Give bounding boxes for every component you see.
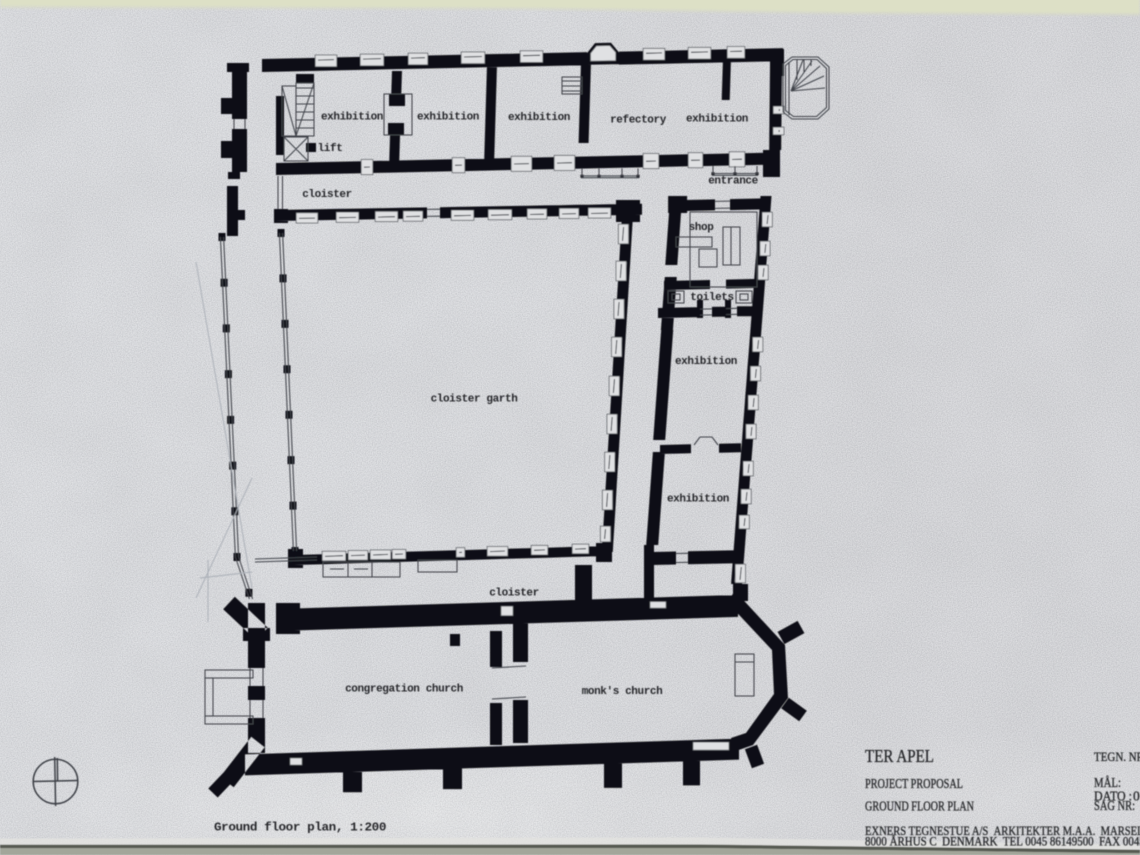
svg-text:exhibition: exhibition xyxy=(417,112,479,124)
svg-text:cloister garth: cloister garth xyxy=(431,394,518,406)
svg-text:exhibition: exhibition xyxy=(675,356,737,368)
svg-text:lift: lift xyxy=(318,143,343,155)
svg-text:TEGN. NR: TEGN. NR xyxy=(1094,750,1140,764)
svg-text:toilets: toilets xyxy=(690,292,733,304)
svg-text:shop: shop xyxy=(689,222,715,234)
svg-text:PROJECT PROPOSAL: PROJECT PROPOSAL xyxy=(865,776,963,791)
svg-text:exhibition: exhibition xyxy=(686,114,748,126)
svg-text:entrance: entrance xyxy=(708,176,758,188)
svg-text:Ground floor plan, 1:200: Ground floor plan, 1:200 xyxy=(214,821,386,835)
svg-text:exhibition: exhibition xyxy=(508,112,570,124)
svg-text:monk's church: monk's church xyxy=(582,686,663,698)
svg-text:8000 ÅRHUS C DENMARK TEL 004: 8000 ÅRHUS C DENMARK TEL 0045 86149500 F… xyxy=(865,835,1140,849)
svg-text:GROUND FLOOR PLAN: GROUND FLOOR PLAN xyxy=(865,799,974,814)
svg-text:TER APEL: TER APEL xyxy=(865,746,934,766)
svg-text:exhibition: exhibition xyxy=(667,494,729,506)
svg-text:refectory: refectory xyxy=(610,115,667,127)
svg-text:SAG NR:: SAG NR: xyxy=(1094,798,1135,813)
svg-text:cloister: cloister xyxy=(489,588,539,600)
svg-text:congregation church: congregation church xyxy=(345,684,463,696)
svg-text:exhibition: exhibition xyxy=(321,112,383,124)
svg-text:cloister: cloister xyxy=(302,189,352,201)
